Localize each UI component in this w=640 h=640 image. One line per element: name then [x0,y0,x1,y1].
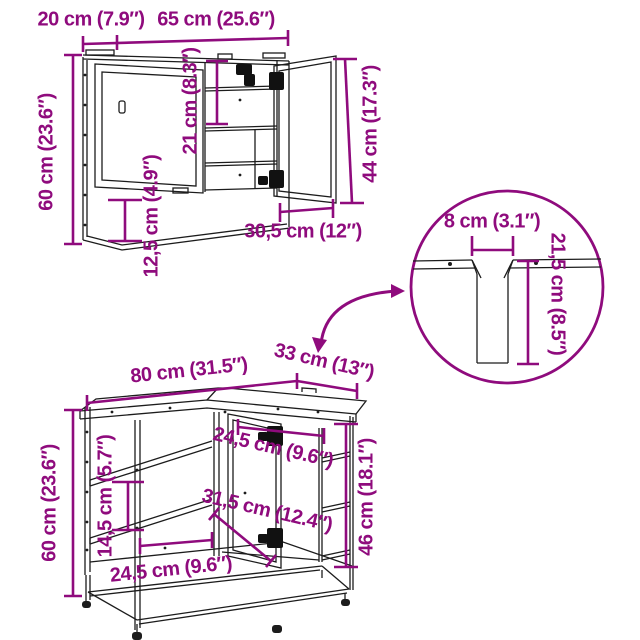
vanity-cabinet-drawing [80,388,366,640]
vanity-cabinet-dimensions [64,373,358,596]
wall-cabinet-drawing [83,50,336,250]
foot-caps [82,599,350,640]
detail-circle [411,191,603,383]
dimension-diagram: 20 cm (7.9″) 65 cm (25.6″) 60 cm (23.6″)… [0,0,640,640]
hinge-icon [258,426,283,548]
detail-arrow-icon [312,284,405,353]
diagram-linework [0,0,640,640]
wall-cabinet-dimensions [64,30,364,244]
